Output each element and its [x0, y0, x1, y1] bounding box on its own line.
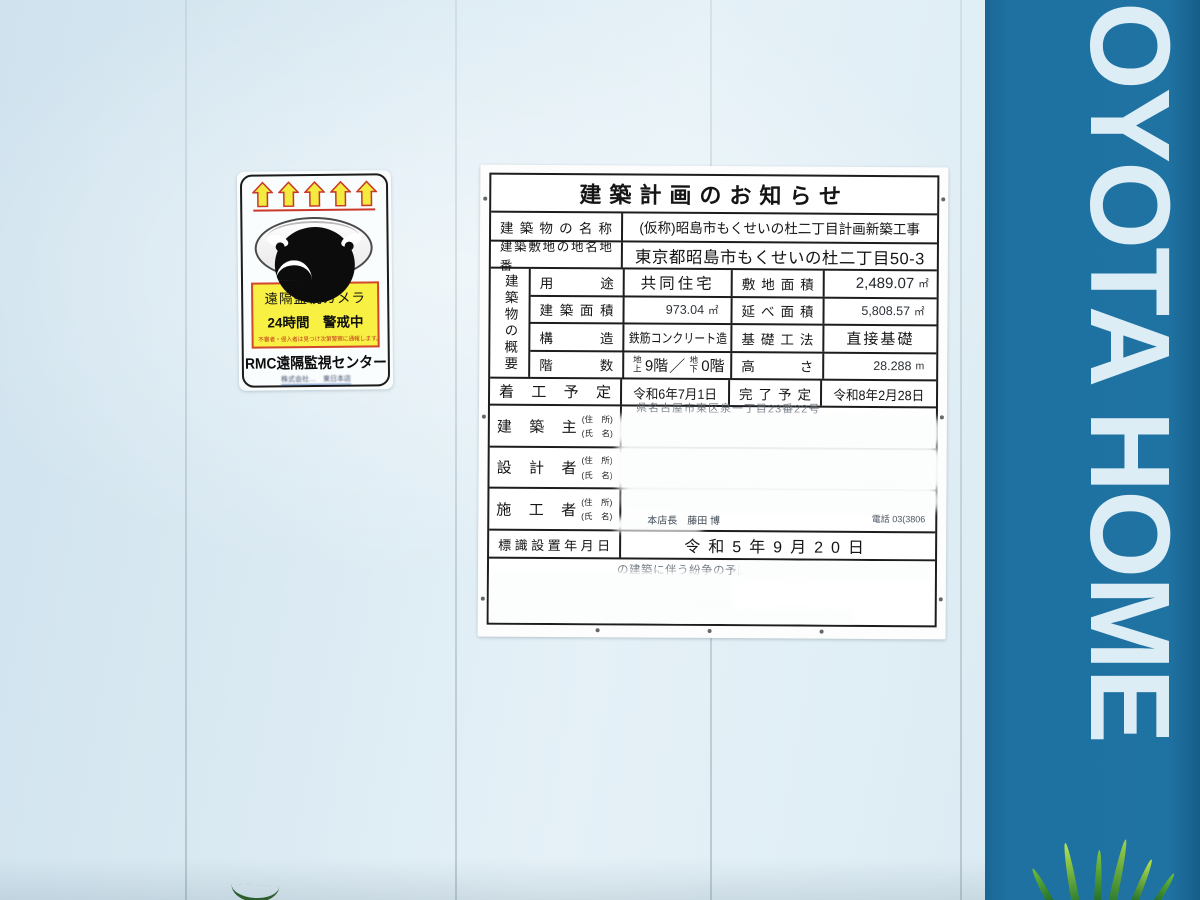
up-arrows [251, 180, 376, 207]
start-date-label: 着工予定 [490, 379, 620, 405]
usage-label: 用途 [531, 269, 623, 295]
addr-label: (住 所) [582, 412, 613, 427]
warning-line2: 24時間 警戒中 [254, 310, 376, 331]
construction-notice-board: 建築計画のお知らせ 建築物の名称 (仮称)昭島市もくせいの杜二丁目計画新築工事 … [478, 165, 949, 640]
table-row: 設計者 (住 所)(氏 名) 株 [489, 446, 935, 490]
bolt-dot [483, 197, 487, 201]
overview-header: 建築物の概要 [490, 269, 529, 377]
owner-label: 建築主 (住 所)(氏 名) [490, 406, 620, 447]
company-name-blurred: 株式会社… 東日本店 [281, 374, 351, 386]
eye-pupil [276, 242, 285, 251]
bolt-dot [481, 597, 485, 601]
bolt-dot [941, 197, 945, 201]
red-divider [253, 208, 375, 211]
total-floor-area-value: 5,808.57㎡ [822, 298, 936, 324]
height-value: 28.288m [822, 353, 936, 379]
addr-label: (住 所) [581, 495, 612, 510]
up-arrow-icon [355, 180, 376, 206]
structure-label: 構造 [530, 324, 622, 350]
floors-value: 地上9階／地下0階 [622, 352, 730, 378]
total-floor-area-label: 延べ面積 [730, 298, 822, 324]
sticker-border: 遠隔監視カメラ 24時間 警戒中 不審者・侵入者は見つけ次第警察に通報します。 … [240, 173, 390, 388]
note-redacted: の建築に伴う紛争の予防と調整に関 れ [489, 559, 935, 626]
bolt-dot [708, 629, 712, 633]
wall-panel-seam [960, 0, 962, 900]
name-label: (氏 名) [582, 426, 613, 441]
sign-date-label: 標識設置年月日 [489, 531, 619, 558]
surveillance-camera-sticker: 遠隔監視カメラ 24時間 警戒中 不審者・侵入者は見つけ次第警察に通報します。 … [237, 170, 393, 391]
table-row: 階数 地上9階／地下0階 高さ 28.288m [530, 349, 936, 379]
dome-camera-icon [253, 212, 376, 280]
table-row: の建築に伴う紛争の予防と調整に関 れ [489, 557, 935, 626]
notice-title: 建築計画のお知らせ [491, 175, 937, 214]
up-arrow-icon [251, 181, 272, 207]
structure-value: 鉄筋コンクリート造 [622, 324, 730, 350]
table-row: 標識設置年月日 令和5年9月20日 [489, 529, 935, 560]
up-arrow-icon [329, 181, 350, 207]
designer-value-redacted: 株 [619, 448, 935, 489]
usage-value: 共同住宅 [623, 269, 731, 295]
building-name-value: (仮称)昭島市もくせいの杜二丁目計画新築工事 [621, 213, 937, 242]
table-row: 建築敷地の地名地番 東京都昭島市もくせいの杜二丁目50-3 [491, 240, 937, 270]
floors-label: 階数 [530, 351, 622, 377]
name-label: (氏 名) [581, 509, 612, 524]
owner-value-redacted: 県名古屋市東区泉一丁目23番22号 [620, 406, 936, 448]
notice-table: 建築計画のお知らせ 建築物の名称 (仮称)昭島市もくせいの杜二丁目計画新築工事 … [487, 173, 940, 628]
redaction-smudge [667, 608, 854, 626]
toyota-home-banner: OYOTA HOME [985, 0, 1200, 900]
contractor-label: 施工者 (住 所)(氏 名) [489, 489, 619, 530]
warning-small-text: 不審者・侵入者は見つけ次第警察に通報します。 [258, 333, 373, 343]
eye-pupil [345, 241, 354, 250]
foundation-value: 直接基礎 [822, 326, 936, 352]
site-area-label: 敷地面積 [731, 270, 823, 296]
contractor-manager-fragment: 本店長 藤田 博 [647, 512, 720, 527]
table-row: 建築面積 973.04㎡ 延べ面積 5,808.57㎡ [530, 294, 936, 324]
banner-text: OYOTA HOME [1073, 2, 1186, 742]
bolt-dot [596, 628, 600, 632]
site-address-label: 建築敷地の地名地番 [491, 242, 621, 268]
building-area-value: 973.04㎡ [622, 297, 730, 323]
table-row: 用途 共同住宅 敷地面積 2,489.07㎡ [531, 269, 937, 297]
table-row: 施工者 (住 所)(氏 名) 本店長 藤田 博 電話 03(3806 [489, 487, 935, 532]
redaction-smudge [621, 485, 939, 513]
up-arrow-icon [303, 181, 324, 207]
contractor-phone-fragment: 電話 03(3806 [872, 512, 926, 525]
bolt-dot [482, 415, 486, 419]
bolt-dot [940, 415, 944, 419]
addr-label: (住 所) [581, 453, 612, 468]
construction-site-photo: 遠隔監視カメラ 24時間 警戒中 不審者・侵入者は見つけ次第警察に通報します。 … [0, 0, 1200, 900]
building-overview-block: 建築物の概要 用途 共同住宅 敷地面積 2,489.07㎡ 建築面積 973.0… [490, 267, 937, 380]
bolt-dot [939, 597, 943, 601]
site-area-value: 2,489.07㎡ [823, 271, 937, 297]
wall-bottom-shadow [0, 858, 985, 900]
sign-date-value: 令和5年9月20日 [619, 531, 935, 559]
building-area-label: 建築面積 [530, 296, 622, 322]
table-row: 建築計画のお知らせ [491, 175, 937, 214]
table-row: 構造 鉄筋コンクリート造 基礎工法 直接基礎 [530, 322, 936, 352]
site-address-value: 東京都昭島市もくせいの杜二丁目50-3 [621, 242, 937, 269]
monitoring-center-name: RMC遠隔監視センター [245, 351, 387, 373]
completion-date-value: 令和8年2月28日 [820, 381, 936, 407]
height-label: 高さ [730, 353, 822, 379]
up-arrow-icon [277, 181, 298, 207]
table-row: 建築主 (住 所)(氏 名) 県名古屋市東区泉一丁目23番22号 [490, 404, 936, 449]
contractor-value-redacted: 本店長 藤田 博 電話 03(3806 [619, 489, 935, 531]
redaction-smudge [734, 559, 935, 582]
overview-rows: 用途 共同住宅 敷地面積 2,489.07㎡ 建築面積 973.04㎡ 延べ面積… [528, 269, 937, 379]
foundation-label: 基礎工法 [730, 325, 822, 351]
designer-label: 設計者 (住 所)(氏 名) [489, 448, 619, 488]
wall-panel-seam [455, 0, 457, 900]
bolt-dot [820, 630, 824, 634]
wall-panel-seam [185, 0, 187, 900]
name-label: (氏 名) [581, 468, 612, 483]
